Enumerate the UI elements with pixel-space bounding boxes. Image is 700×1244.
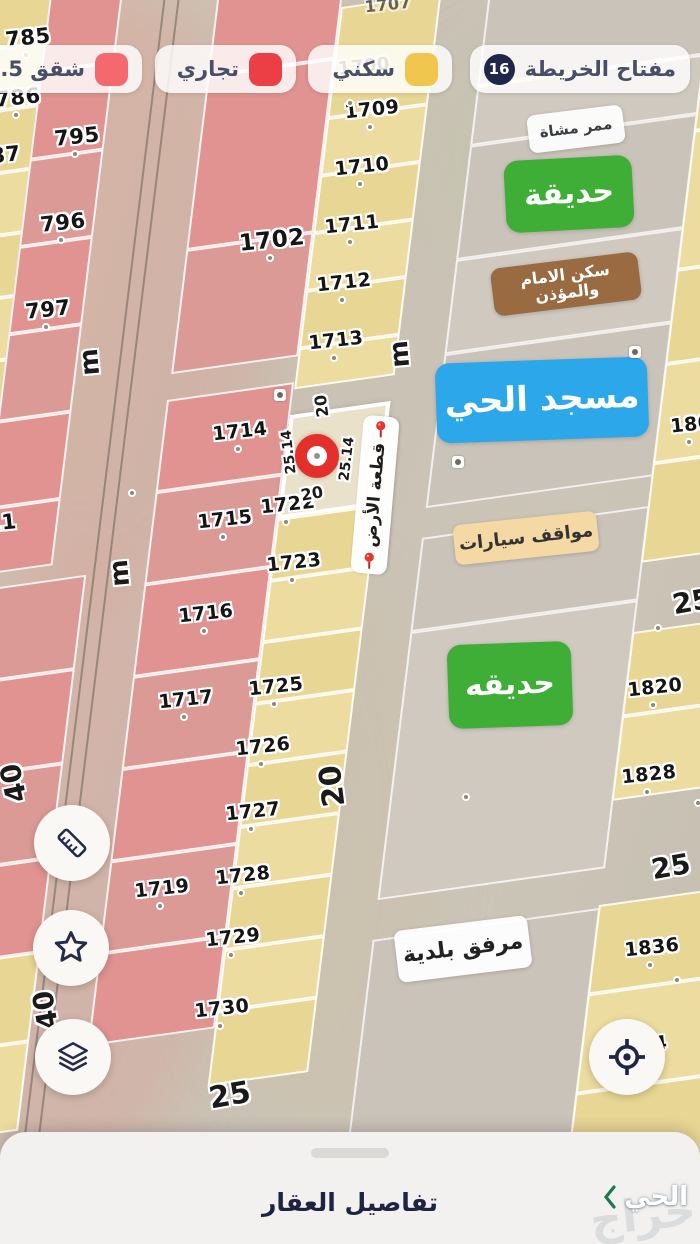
street-width-label: m (386, 339, 414, 368)
parcel-dot (685, 438, 693, 446)
parcel-dot (288, 576, 296, 584)
parcel-dot (266, 254, 274, 262)
mosque-label: مسجد الحي (435, 356, 650, 443)
parcel-dot (234, 445, 242, 453)
parcel-label: 1728 (215, 864, 272, 889)
parcel-label: 1715 (197, 508, 254, 533)
bottom-sheet: حراج تفاصيل العقار الحي (0, 1132, 700, 1244)
favorite-tool-button[interactable] (33, 910, 109, 986)
parcel-dot (649, 701, 657, 709)
corner-marker (452, 456, 464, 468)
parcel-label: 1713 (308, 329, 365, 354)
parcel-label: 1820 (627, 676, 684, 701)
parcel-dot (216, 1022, 224, 1030)
park-label-top: حديقة (503, 155, 635, 234)
parcel-dot (346, 99, 354, 107)
parcel-dot (200, 627, 208, 635)
parcel-dot (57, 236, 65, 244)
parcel-dot (654, 624, 662, 632)
corner-marker (274, 389, 286, 401)
legend-item-label: تجاري (177, 57, 239, 81)
chevron-left-icon (602, 1184, 618, 1210)
ruler-icon (52, 823, 92, 863)
parcel-dot (366, 123, 374, 131)
parcel-dot (346, 238, 354, 246)
street-width-label: 25 (670, 585, 700, 619)
map-app-screen: 7857867878117957967971702170017071709171… (0, 0, 700, 1244)
parcel-dot (219, 533, 227, 541)
commercial-color-swatch (249, 53, 282, 86)
locate-me-button[interactable] (589, 1019, 665, 1095)
parcel-dot (673, 976, 681, 984)
legend-item-apartments: شقق 3.5 (0, 45, 142, 93)
parcel-dot (270, 700, 278, 708)
crosshair-icon (605, 1035, 649, 1079)
parcel-label: 1719 (134, 877, 191, 902)
parcel-label: 811 (0, 511, 18, 537)
parcel-label: 1716 (178, 602, 235, 627)
parcel-label: 796 (39, 210, 86, 236)
legend-title: مفتاح الخريطة (525, 57, 676, 81)
parcel-label: 1723 (266, 551, 323, 576)
street-width-label: m (76, 347, 104, 376)
parcel-dot (42, 323, 50, 331)
parcel-label: 797 (24, 297, 71, 323)
parcel-label: 1710 (334, 155, 391, 180)
parcel-label: 1702 (238, 226, 306, 256)
parcel-label: 795 (53, 124, 100, 150)
parcel-dot (180, 713, 188, 721)
star-icon (50, 927, 92, 969)
street-width-label: 25 (649, 850, 692, 884)
parcel-dot (330, 354, 338, 362)
legend-item-residential: سكني (308, 45, 452, 93)
municipal-label: مرفق بلدية (393, 915, 532, 983)
parcel-label: 1727 (225, 800, 282, 825)
parcel-dot (356, 180, 364, 188)
parcel-dot (12, 111, 20, 119)
street-width-label: 20 (316, 763, 351, 808)
street-width-label: 25 (207, 1078, 253, 1115)
street-width-label: 20 (313, 394, 332, 418)
legend-item-label: شقق 3.5 (0, 57, 85, 81)
map-pin-icon (374, 420, 388, 438)
walkway-label: ممر مشاة (526, 104, 626, 153)
parcel-dot (71, 150, 79, 158)
parcel-dot (247, 825, 255, 833)
plot-tag-text: قطعة الأرض (360, 442, 389, 548)
parcel-dot (237, 889, 245, 897)
parcel-dot (257, 760, 265, 768)
parcel-dot (128, 489, 136, 497)
parking-label: مواقف سيارات (452, 511, 599, 566)
parcel-label: 1711 (324, 213, 381, 238)
parcel-label: 1828 (621, 763, 678, 788)
residential-color-swatch (405, 53, 438, 86)
legend-item-label: سكني (332, 57, 395, 81)
neighborhood-link-label: الحي (624, 1182, 688, 1212)
layers-tool-button[interactable] (35, 1019, 111, 1095)
plot-marker[interactable] (295, 434, 339, 478)
parcel-dot (282, 518, 290, 526)
parcel-dot (694, 799, 700, 807)
parcel-dot (643, 788, 651, 796)
ruler-tool-button[interactable] (34, 805, 110, 881)
parcel-dot (338, 296, 346, 304)
neighborhood-link[interactable]: الحي (602, 1182, 688, 1212)
parcel-label: 1707 (364, 0, 412, 15)
legend-count-badge: 16 (484, 54, 515, 85)
parcel-label: 1717 (158, 688, 215, 713)
apartments-color-swatch (95, 53, 128, 86)
street-width-label: 40 (0, 761, 32, 805)
street-width-label: 20 (300, 484, 325, 504)
parcel-label: 1836 (624, 936, 681, 961)
legend-key-pill: مفتاح الخريطة 16 (470, 45, 690, 93)
parcel-dot (156, 902, 164, 910)
map-pin-icon (362, 552, 376, 570)
parcel-label: 787 (0, 143, 22, 169)
sheet-title: تفاصيل العقار (0, 1188, 700, 1217)
layers-icon (53, 1037, 93, 1077)
map-legend: مفتاح الخريطة 16 سكني تجاري شقق 3.5 (0, 45, 700, 93)
parcel-label: 1725 (248, 675, 305, 700)
parcel-dot (227, 951, 235, 959)
park-label-mid: حديقه (447, 641, 574, 729)
parcel-label: 1712 (316, 271, 373, 296)
corner-marker (629, 346, 641, 358)
parcel-label: 1730 (194, 997, 251, 1022)
street-width-label: 25.14 (337, 436, 356, 482)
parcel-label: 1726 (235, 735, 292, 760)
parcel-label: 180 (670, 413, 700, 436)
parcel-dot (462, 793, 470, 801)
parcel-dot (646, 961, 654, 969)
legend-item-commercial: تجاري (155, 45, 296, 93)
imam-housing-label: سكن الامام والمؤذن (490, 251, 643, 317)
street-width-label: m (106, 558, 134, 587)
parcel-label: 1729 (205, 926, 262, 951)
parcel-label: 1714 (212, 420, 269, 445)
sheet-drag-handle[interactable] (311, 1148, 389, 1158)
